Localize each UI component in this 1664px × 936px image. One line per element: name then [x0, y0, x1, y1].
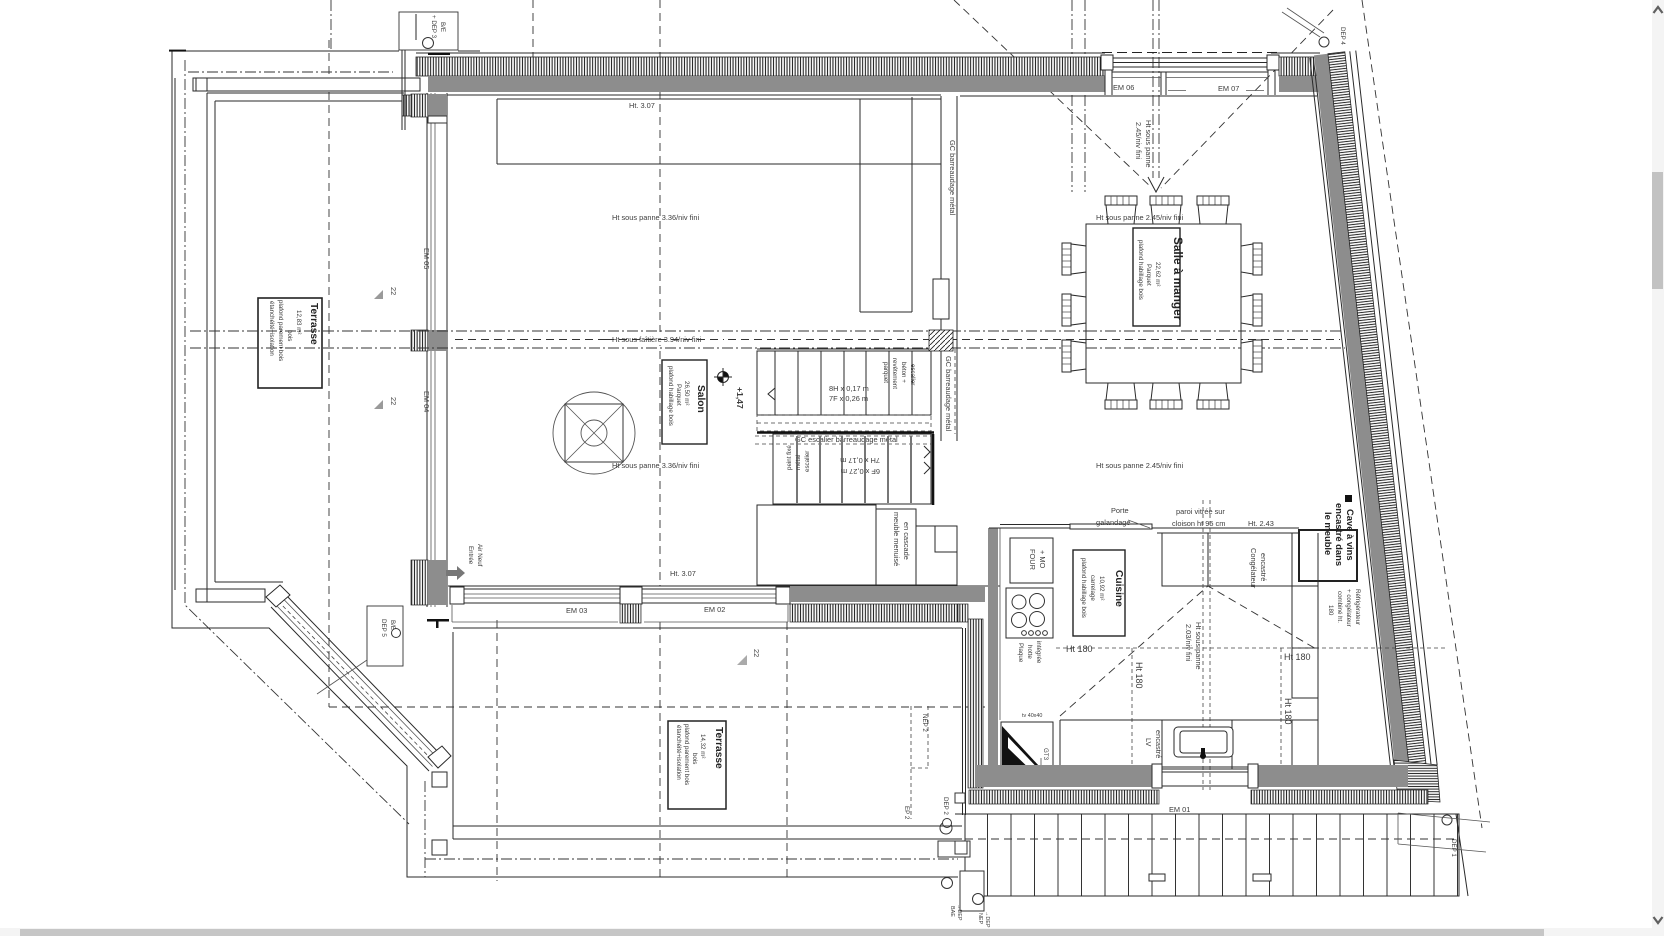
- svg-text:EM 06: EM 06: [1113, 83, 1134, 92]
- svg-text:Plaque: Plaque: [1017, 643, 1024, 663]
- svg-text:FOUR: FOUR: [1028, 549, 1037, 570]
- svg-text:22: 22: [389, 397, 398, 405]
- svg-text:le meuble: le meuble: [1323, 512, 1334, 555]
- svg-text:LV: LV: [1144, 738, 1153, 747]
- svg-text:+ MO: + MO: [1038, 550, 1047, 569]
- svg-text:GC escalier barreaudage métal: GC escalier barreaudage métal: [795, 435, 898, 444]
- svg-text:NEP 2: NEP 2: [921, 714, 928, 732]
- svg-text:paroi vitrée sur: paroi vitrée sur: [1176, 507, 1225, 516]
- svg-text:encastré dans: encastré dans: [1334, 503, 1345, 566]
- svg-text:carrelage: carrelage: [1089, 575, 1096, 601]
- svg-text:22: 22: [389, 287, 398, 295]
- svg-text:métal: métal: [795, 455, 802, 470]
- svg-text:plafond parement bois: plafond parement bois: [683, 724, 690, 785]
- svg-text:7F x 0,26 m: 7F x 0,26 m: [829, 394, 868, 403]
- svg-text:Air Neuf: Air Neuf: [476, 544, 483, 567]
- svg-text:+ DEP 3: + DEP 3: [430, 15, 437, 39]
- svg-text:EM 03: EM 03: [566, 606, 587, 615]
- svg-text:EM 02: EM 02: [704, 605, 725, 614]
- svg-text:B/E: B/E: [439, 22, 446, 32]
- svg-text:Congélateur: Congélateur: [1249, 548, 1258, 589]
- svg-text:Entrée: Entrée: [467, 546, 474, 565]
- svg-text:escalier: escalier: [909, 364, 916, 385]
- svg-text:Terrasse: Terrasse: [308, 303, 319, 345]
- svg-text:→DEP: →DEP: [956, 904, 962, 921]
- svg-text:+1,47: +1,47: [735, 387, 745, 409]
- svg-text:combiné ht.: combiné ht.: [1336, 591, 1343, 623]
- svg-text:EM 07: EM 07: [1218, 84, 1239, 93]
- svg-text:22: 22: [752, 649, 761, 657]
- svg-text:hotte: hotte: [1026, 645, 1033, 659]
- svg-text:encastré: encastré: [1154, 730, 1163, 758]
- svg-text:Ht sous panne: Ht sous panne: [1144, 120, 1153, 168]
- svg-text:Réfrigérateur: Réfrigérateur: [1354, 589, 1361, 625]
- svg-text:Ht sous panne 3.36/niv fini: Ht sous panne 3.36/niv fini: [612, 461, 699, 470]
- svg-text:Cave à vins: Cave à vins: [1345, 509, 1356, 561]
- svg-text:DEP 1: DEP 1: [1450, 839, 1457, 857]
- svg-text:Ht sous panne 3.36/niv fini: Ht sous panne 3.36/niv fini: [612, 213, 699, 222]
- svg-text:Ht. 2.43: Ht. 2.43: [1248, 519, 1274, 528]
- svg-text:béton +: béton +: [900, 362, 907, 383]
- svg-text:DEP 4: DEP 4: [1339, 27, 1346, 45]
- svg-text:GC barreaudage métal: GC barreaudage métal: [944, 356, 953, 432]
- svg-text:22,62 m²: 22,62 m²: [1154, 262, 1161, 286]
- svg-text:2.03/niv fini: 2.03/niv fini: [1184, 624, 1193, 662]
- svg-text:EP 2: EP 2: [903, 806, 910, 820]
- svg-text:revêtement: revêtement: [891, 358, 898, 389]
- svg-text:Cuisine: Cuisine: [1113, 570, 1124, 607]
- svg-text:Ht sous panne: Ht sous panne: [1194, 622, 1203, 670]
- svg-text:8H x 0,17 m: 8H x 0,17 m: [829, 384, 869, 393]
- svg-text:cloison ht 95 cm: cloison ht 95 cm: [1172, 519, 1225, 528]
- svg-text:+ congélateur: + congélateur: [1345, 589, 1352, 627]
- svg-text:Ht. 3.07: Ht. 3.07: [670, 569, 696, 578]
- svg-text:Ht 180: Ht 180: [1066, 644, 1093, 654]
- svg-text:parquet: parquet: [882, 362, 889, 383]
- svg-text:en cascade: en cascade: [902, 522, 911, 560]
- svg-text:Ht sous panne 2.45/niv fini: Ht sous panne 2.45/niv fini: [1096, 461, 1183, 470]
- svg-text:EM 01: EM 01: [1169, 805, 1190, 814]
- svg-text:DEP 5: DEP 5: [380, 619, 387, 637]
- svg-text:Ht 180: Ht 180: [1134, 662, 1144, 689]
- svg-text:2.45/niv fini: 2.45/niv fini: [1134, 122, 1143, 160]
- svg-text:plafond habillage bois: plafond habillage bois: [1137, 240, 1144, 300]
- svg-text:7H x 0,17 m: 7H x 0,17 m: [840, 456, 880, 465]
- svg-text:plafond habillage bois: plafond habillage bois: [667, 366, 674, 426]
- svg-text:Ht. 3.07: Ht. 3.07: [629, 101, 655, 110]
- svg-text:DEP 2: DEP 2: [942, 797, 949, 815]
- svg-text:10,92 m²: 10,92 m²: [1098, 576, 1105, 600]
- svg-text:étanchéité+isolation: étanchéité+isolation: [675, 725, 682, 780]
- svg-text:Parquet: Parquet: [1145, 264, 1152, 286]
- svg-text:peint fixé: peint fixé: [786, 445, 793, 470]
- svg-text:26,50 m²: 26,50 m²: [683, 381, 690, 405]
- svg-text:bois: bois: [691, 753, 698, 764]
- svg-text:meuble menuisé: meuble menuisé: [892, 512, 901, 566]
- svg-text:Ht 180: Ht 180: [1284, 652, 1311, 662]
- svg-text:encastré: encastré: [1259, 553, 1268, 581]
- svg-text:GT3: GT3: [1042, 748, 1049, 761]
- svg-text:tv 40x40: tv 40x40: [1022, 713, 1042, 719]
- svg-text:plafond habillage bois: plafond habillage bois: [1080, 558, 1087, 618]
- svg-text:6F x 0,27 m: 6F x 0,27 m: [841, 467, 880, 476]
- svg-text:EM 04: EM 04: [422, 391, 431, 412]
- svg-text:BAE: BAE: [949, 906, 955, 917]
- svg-text:→DEP: →DEP: [984, 911, 990, 928]
- svg-text:GC barreaudage métal: GC barreaudage métal: [948, 140, 957, 216]
- svg-text:bois: bois: [286, 330, 293, 341]
- svg-text:intégrée: intégrée: [1035, 641, 1042, 664]
- svg-text:galandage: galandage: [1096, 518, 1131, 527]
- svg-text:NEP: NEP: [977, 913, 983, 924]
- svg-text:Terrasse: Terrasse: [713, 727, 724, 769]
- svg-text:EM 05: EM 05: [422, 248, 431, 269]
- svg-text:180: 180: [1327, 605, 1334, 616]
- svg-text:Salon: Salon: [695, 385, 706, 413]
- svg-text:Porte: Porte: [1111, 506, 1129, 515]
- svg-text:Parquet: Parquet: [675, 384, 682, 406]
- svg-text:escalier: escalier: [804, 451, 811, 472]
- svg-text:Ht sous panne 2.45/niv fini: Ht sous panne 2.45/niv fini: [1096, 213, 1183, 222]
- svg-text:14,32 m²: 14,32 m²: [699, 734, 706, 758]
- svg-text:Salle à manger: Salle à manger: [1171, 237, 1185, 321]
